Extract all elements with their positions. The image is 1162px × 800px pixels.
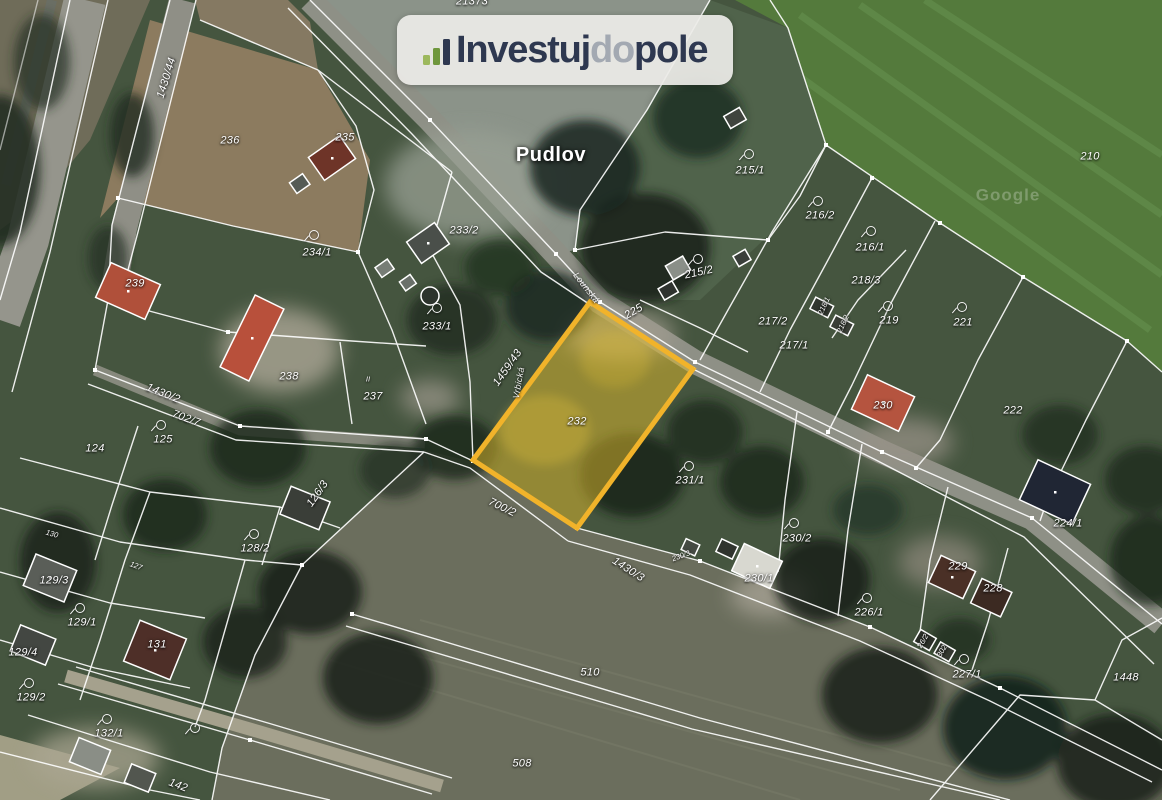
parcel-label-127: 127: [129, 560, 143, 571]
parcel-label-230-2: 230/2: [782, 534, 811, 545]
parcel-label-1430-3: 1430/3: [610, 556, 646, 585]
garden-land-use-symbol: [249, 529, 259, 539]
garden-land-use-symbol: [75, 603, 85, 613]
place-label-pudlov: Pudlov: [516, 145, 586, 165]
parcel-label-227-1: 227/1: [952, 670, 981, 681]
map-labels-layer: 21373PudlovGoogle1430/44236235234/1233/2…: [0, 0, 1162, 800]
parcel-label-26-2: 26/2: [916, 633, 930, 649]
garden-land-use-symbol: [156, 420, 166, 430]
parcel-label-231-1: 231/1: [675, 476, 704, 487]
parcel-label-225: 225: [623, 302, 645, 321]
garden-land-use-symbol: [789, 518, 799, 528]
parcel-label-221: 221: [953, 318, 972, 329]
parcel-label-228: 228: [983, 584, 1002, 595]
parcel-label-224-1: 224/1: [1053, 519, 1082, 530]
parcel-label-237: 237: [363, 392, 382, 403]
parcel-label-129-3: 129/3: [39, 576, 68, 587]
parcel-label-218-1: 218/1: [817, 296, 832, 316]
parcel-label-233-2: 233/2: [449, 226, 478, 237]
garden-land-use-symbol: [102, 714, 112, 724]
parcel-label-129-1: 129/1: [67, 618, 96, 629]
parcel-label-700-2: 700/2: [487, 497, 518, 520]
garden-land-use-symbol: [684, 461, 694, 471]
garden-land-use-symbol: [24, 678, 34, 688]
parcel-label-236: 236: [220, 136, 239, 147]
parcel-label-215-1: 215/1: [735, 166, 764, 177]
parcel-label-217-1: 217/1: [779, 341, 808, 352]
parcel-label-235: 235: [335, 133, 354, 144]
parcel-label-1430-44: 1430/44: [156, 56, 179, 99]
logo-text-pole: pole: [634, 31, 707, 69]
logo-badge: Investuj do pole: [397, 15, 733, 85]
parcel-label-702-7: 702/7: [170, 409, 201, 429]
parcel-label-234-1: 234/1: [302, 248, 331, 259]
garden-land-use-symbol: [957, 302, 967, 312]
garden-land-use-symbol: [309, 230, 319, 240]
garden-land-use-symbol: [693, 254, 703, 264]
logo-growth-bars-icon: [423, 35, 450, 65]
garden-land-use-symbol: [959, 654, 969, 664]
parcel-label-1448: 1448: [1113, 673, 1139, 684]
imagery-watermark-google: Google: [976, 187, 1041, 204]
logo-text-do: do: [590, 31, 634, 69]
parcel-label-218-3: 218/3: [851, 276, 880, 287]
parcel-label-215-2: 215/2: [684, 265, 715, 282]
parcel-label-216-2: 216/2: [805, 211, 834, 222]
parcel-label-508: 508: [512, 759, 531, 770]
garden-land-use-symbol: [813, 196, 823, 206]
garden-land-use-symbol: [862, 593, 872, 603]
parcel-label-129-4: 129/4: [8, 648, 37, 659]
parcel-label-216-1: 216/1: [855, 243, 884, 254]
parcel-label-510: 510: [580, 668, 599, 679]
parcel-label-126-3: 126/3: [305, 479, 331, 509]
garden-land-use-symbol: [866, 226, 876, 236]
parcel-label-128-2: 128/2: [240, 544, 269, 555]
logo-text-investuj: Investuj: [456, 31, 590, 69]
parcel-label-131: 131: [147, 640, 166, 651]
parcel-label-217-2: 217/2: [758, 317, 787, 328]
parcel-label-239: 239: [125, 279, 144, 290]
parcel-label-210: 210: [1080, 152, 1099, 163]
parcel-label-230: 230: [873, 401, 892, 412]
parcel-label-218-2: 218/2: [836, 314, 851, 334]
satellite-cadastral-map[interactable]: 21373PudlovGoogle1430/44236235234/1233/2…: [0, 0, 1162, 800]
parcel-label-1430-2: 1430/2: [145, 382, 182, 405]
parcel-label-124: 124: [85, 444, 104, 455]
garden-land-use-symbol: [432, 303, 442, 313]
parcel-label-142: 142: [167, 778, 189, 795]
parcel-label-229: 229: [948, 562, 967, 573]
parcel-label-302: 302: [936, 644, 949, 659]
parcel-label-230-3: 230/3: [671, 549, 691, 562]
highlighted-parcel-label: 232: [567, 417, 586, 428]
parcel-label-222: 222: [1003, 406, 1022, 417]
parcel-label-125: 125: [153, 435, 172, 446]
parcel-label-219: 219: [879, 316, 898, 327]
garden-land-use-symbol: [744, 149, 754, 159]
parcel-label-ii: II: [366, 375, 370, 383]
street-label-lounsk-: Lounská: [571, 271, 600, 305]
parcel-label-129-2: 129/2: [16, 693, 45, 704]
parcel-label-230-1: 230/1: [744, 574, 773, 585]
parcel-label-132-1: 132/1: [94, 729, 123, 740]
parcel-label-226-1: 226/1: [854, 608, 883, 619]
garden-land-use-symbol: [883, 301, 893, 311]
street-label-vrbick-: Vrbická: [512, 366, 526, 399]
parcel-label-233-1: 233/1: [422, 322, 451, 333]
parcel-label-238: 238: [279, 372, 298, 383]
parcel-label-21373: 21373: [456, 0, 488, 8]
parcel-label-130: 130: [45, 529, 59, 539]
garden-land-use-symbol: [190, 723, 200, 733]
